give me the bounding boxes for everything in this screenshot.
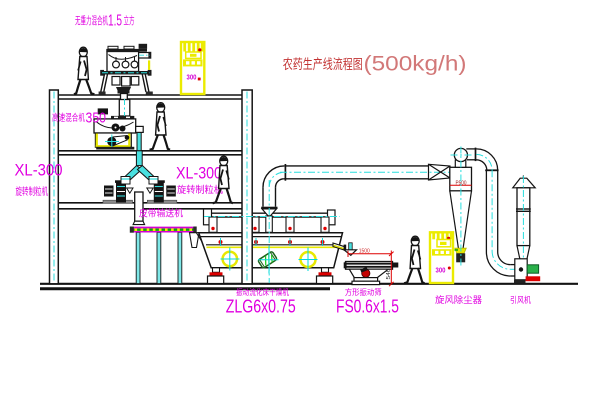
svg-text:农药生产线流程图: 农药生产线流程图 (283, 57, 363, 72)
svg-text:(500kg/h): (500kg/h) (364, 53, 467, 76)
svg-text:旋转制粒机: 旋转制粒机 (177, 184, 223, 196)
svg-text:ZLG6x0.75: ZLG6x0.75 (226, 296, 296, 317)
svg-text:无重力混合机: 无重力混合机 (75, 14, 108, 27)
svg-text:旋风除尘器: 旋风除尘器 (435, 294, 482, 305)
svg-text:旋转制粒机: 旋转制粒机 (16, 185, 49, 198)
svg-text:350: 350 (86, 110, 107, 127)
svg-text:XL-300: XL-300 (176, 164, 222, 183)
svg-text:1500: 1500 (359, 249, 370, 255)
svg-text:立方: 立方 (124, 14, 135, 27)
svg-text:高速混合机: 高速混合机 (52, 112, 85, 124)
svg-text:300: 300 (436, 266, 446, 275)
svg-text:300: 300 (187, 73, 197, 82)
svg-text:FS0.6x1.5: FS0.6x1.5 (336, 296, 399, 317)
svg-text:引风机: 引风机 (510, 295, 531, 305)
svg-text:XL-300: XL-300 (15, 161, 63, 180)
svg-text:1.5: 1.5 (108, 13, 122, 30)
svg-text:540: 540 (386, 269, 392, 280)
svg-text:皮带输送机: 皮带输送机 (139, 207, 183, 219)
